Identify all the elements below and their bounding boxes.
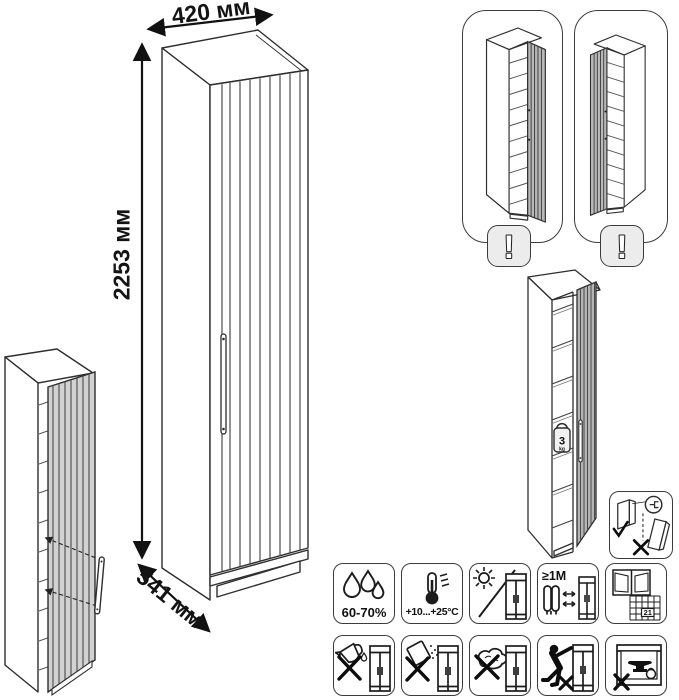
- no-wet-cloth-icon: [471, 637, 529, 695]
- wardrobe-mini: [438, 646, 458, 691]
- door-handle: [579, 420, 582, 462]
- no-direct-sunlight-icon: [471, 565, 529, 623]
- no-drag-icon: [539, 637, 597, 695]
- exclamation-icon: !: [601, 226, 645, 268]
- distance-label: ≥1М: [542, 569, 566, 583]
- wardrobe-mini: [579, 577, 595, 619]
- humidity-icon: [335, 569, 393, 605]
- wardrobe-mini: [370, 646, 390, 691]
- door-handle: [94, 557, 104, 614]
- handle-mounting-view: [0, 340, 120, 700]
- wardrobe-mini: [506, 646, 526, 691]
- door-handle: [221, 334, 226, 434]
- no-overload-icon: [607, 637, 665, 695]
- care-card-no-wet-cleaning: [469, 635, 531, 696]
- warning-mark: !: [617, 229, 628, 265]
- calendar-day-label: 21: [644, 608, 652, 617]
- product-assembly-sheet: 420 мм 2253 мм 541 мм: [0, 0, 679, 700]
- wardrobe-mini: [573, 645, 593, 691]
- no-spray-icon: [403, 637, 461, 695]
- open-door-panel: [577, 282, 596, 546]
- care-card-heater-distance: ≥1М: [537, 563, 599, 624]
- hinge-variant-card-left: [462, 10, 563, 243]
- care-card-no-liquids: [333, 635, 395, 696]
- hinge-variant-card-right: [574, 10, 668, 243]
- ventilation-icon: 21: [607, 565, 665, 623]
- thermometer-icon: [403, 570, 461, 606]
- open-wardrobe-right-hinge-icon: [575, 11, 667, 242]
- care-card-temperature: +10...+25°С: [401, 563, 463, 624]
- heater-distance-icon: ≥1М: [539, 565, 597, 623]
- wardrobe-isometric-body: [162, 30, 308, 600]
- wardrobe-mini: [506, 574, 526, 619]
- anti-tip-warning-card: [609, 491, 673, 559]
- care-instructions-grid: 60-70% +10...+25°С: [333, 563, 667, 696]
- shelf-load-icon: 3 kg: [554, 424, 570, 453]
- height-dimension-label: 2253 мм: [111, 199, 134, 311]
- shelves: [552, 304, 573, 528]
- care-card-no-overload: [605, 635, 667, 696]
- radiator-icon: [544, 586, 559, 615]
- shelf-edge-marks: [39, 402, 48, 670]
- care-card-ventilation: 21: [605, 563, 667, 624]
- front-door-panel: [210, 70, 308, 575]
- no-liquid-icon: [335, 637, 393, 695]
- warning-badge-left: !: [487, 225, 531, 267]
- exclamation-icon: !: [488, 226, 532, 268]
- care-card-no-dragging: [537, 635, 599, 696]
- open-window-icon: [613, 570, 650, 595]
- care-card-humidity: 60-70%: [333, 563, 395, 624]
- warning-mark: !: [504, 229, 515, 265]
- shelf-load-unit: kg: [559, 447, 565, 453]
- weight-icon: [647, 668, 656, 678]
- care-card-sunlight: [469, 563, 531, 624]
- temperature-label: +10...+25°С: [406, 607, 459, 618]
- person-figure: [543, 644, 571, 684]
- interior-shelves-view: 3 kg: [503, 260, 618, 580]
- care-card-no-spray: [401, 635, 463, 696]
- wall-anchor-warning-icon: [610, 492, 672, 558]
- main-wardrobe-drawing: [90, 0, 340, 660]
- open-wardrobe-left-hinge-icon: [463, 11, 562, 242]
- warning-badge-right: !: [600, 225, 644, 267]
- humidity-label: 60-70%: [342, 606, 387, 619]
